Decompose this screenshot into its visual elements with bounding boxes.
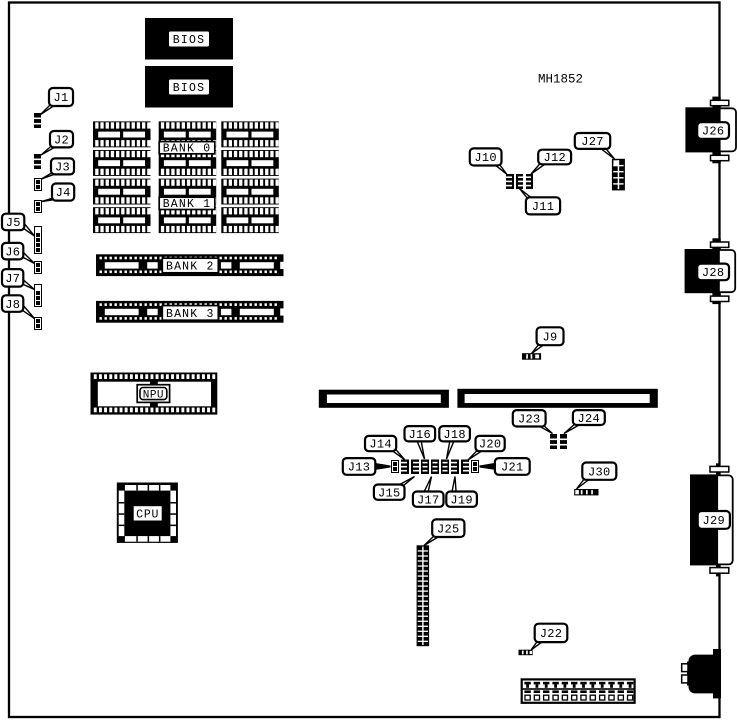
svg-text:J26: J26 bbox=[702, 125, 725, 139]
svg-text:J27: J27 bbox=[581, 135, 604, 149]
svg-text:J6: J6 bbox=[5, 245, 20, 259]
svg-text:MH1852: MH1852 bbox=[538, 73, 583, 87]
svg-text:J22: J22 bbox=[540, 627, 563, 641]
svg-text:J10: J10 bbox=[474, 151, 497, 165]
svg-text:J12: J12 bbox=[543, 151, 566, 165]
svg-text:BANK 1: BANK 1 bbox=[163, 198, 212, 211]
svg-text:J9: J9 bbox=[542, 330, 557, 344]
svg-text:J3: J3 bbox=[55, 161, 70, 175]
svg-text:J30: J30 bbox=[588, 465, 611, 479]
svg-text:J20: J20 bbox=[479, 438, 502, 452]
svg-text:BIOS: BIOS bbox=[173, 34, 205, 47]
svg-text:J25: J25 bbox=[437, 522, 460, 536]
svg-text:NPU: NPU bbox=[143, 390, 164, 402]
svg-text:CPU: CPU bbox=[136, 508, 159, 521]
svg-text:BIOS: BIOS bbox=[173, 82, 205, 95]
svg-text:BANK 0: BANK 0 bbox=[163, 142, 212, 155]
svg-text:J4: J4 bbox=[56, 186, 71, 200]
svg-text:J29: J29 bbox=[703, 514, 726, 528]
svg-text:J17: J17 bbox=[417, 493, 440, 507]
svg-text:J21: J21 bbox=[501, 461, 524, 475]
svg-text:J24: J24 bbox=[578, 412, 601, 426]
svg-text:J16: J16 bbox=[409, 428, 432, 442]
svg-text:J23: J23 bbox=[518, 413, 541, 427]
svg-text:J14: J14 bbox=[369, 438, 392, 452]
svg-text:J1: J1 bbox=[53, 91, 68, 105]
svg-text:BANK 3: BANK 3 bbox=[166, 308, 215, 321]
svg-text:J18: J18 bbox=[443, 428, 466, 442]
svg-text:J8: J8 bbox=[5, 298, 20, 312]
svg-text:J28: J28 bbox=[702, 266, 725, 280]
svg-text:J2: J2 bbox=[54, 133, 69, 147]
svg-text:BANK 2: BANK 2 bbox=[166, 261, 215, 274]
svg-text:J5: J5 bbox=[6, 216, 21, 230]
svg-text:J11: J11 bbox=[532, 200, 555, 214]
svg-text:J7: J7 bbox=[5, 272, 20, 286]
svg-text:J19: J19 bbox=[450, 493, 473, 507]
svg-text:J13: J13 bbox=[348, 461, 371, 475]
svg-text:J15: J15 bbox=[378, 486, 401, 500]
